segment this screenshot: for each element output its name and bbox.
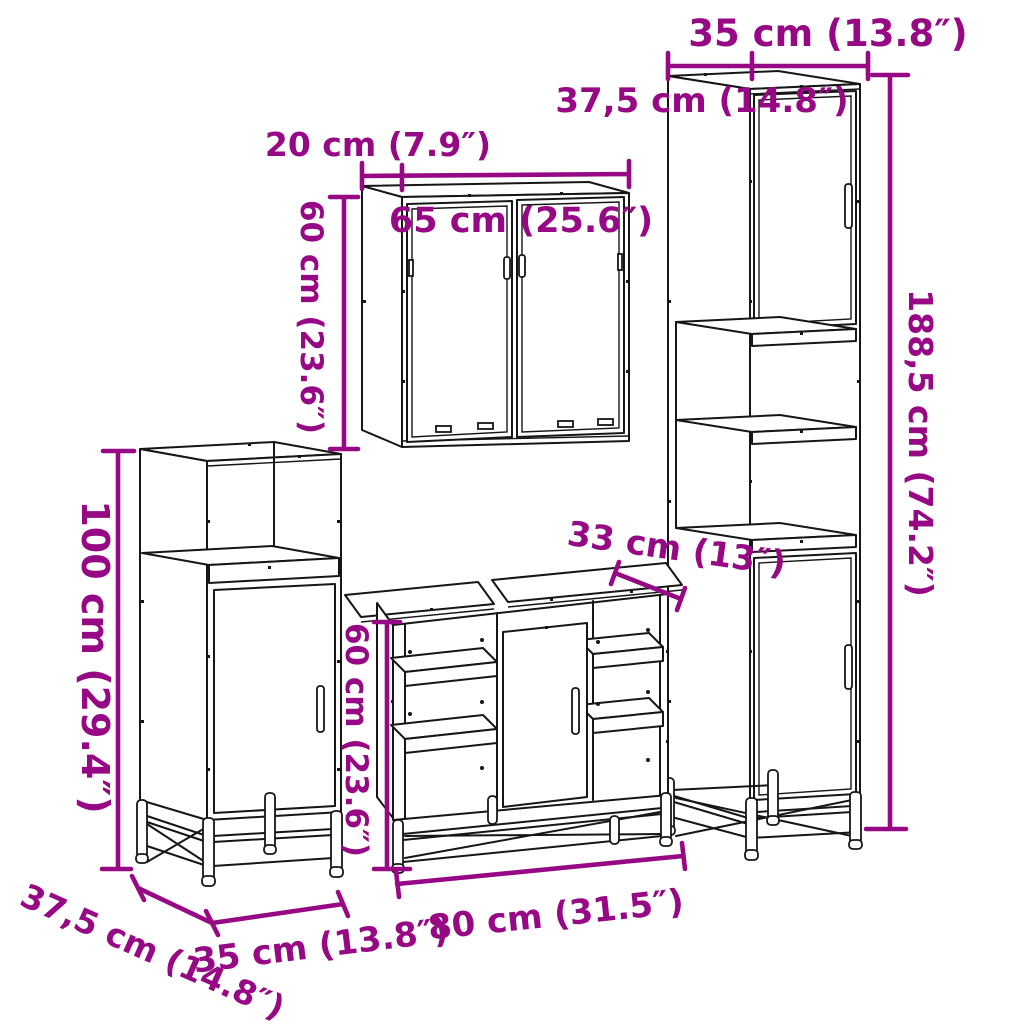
tall-cabinet-bottom-door-handle (845, 645, 852, 689)
dim-side-depth-width: 37,5 cm (14.8″) 35 cm (13.8″) (15, 876, 451, 1024)
dim-tall-width: 35 cm (13.8″) (668, 12, 968, 79)
tall-cabinet-top-door (754, 91, 856, 329)
dim-label-mirror-depth: 20 cm (7.9″) (265, 125, 491, 164)
tall-cabinet-bottom-door (754, 553, 856, 800)
dim-label-vanity-width: 80 cm (31.5″) (426, 882, 686, 949)
furniture-dimension-diagram: 35 cm (13.8″) 37,5 cm (14.8″) 188,5 cm (… (0, 0, 1024, 1024)
vanity-door-handle (572, 688, 579, 734)
side-cabinet-door-handle (317, 686, 324, 732)
side-cabinet-drawing (136, 442, 343, 886)
dim-label-tall-height: 188,5 cm (74.2″) (901, 289, 940, 597)
vanity-cabinet-drawing (345, 563, 682, 873)
dim-side-height: 100 cm (29.4″) (73, 451, 134, 869)
dim-tall-height: 188,5 cm (74.2″) (866, 75, 940, 829)
tall-cabinet-drawing (663, 71, 862, 860)
tall-cabinet-top-door-handle (845, 184, 852, 228)
tall-cabinet-side-face (668, 76, 750, 838)
mirror-cabinet-right-door-handle (519, 255, 525, 277)
mirror-cabinet-left-door-handle (504, 257, 510, 279)
dim-label-mirror-height: 60 cm (23.6″) (293, 200, 329, 434)
diagram-canvas: 35 cm (13.8″) 37,5 cm (14.8″) 188,5 cm (… (0, 0, 1024, 1024)
dim-mirror-height: 60 cm (23.6″) (293, 197, 358, 449)
dim-label-side-height: 100 cm (29.4″) (73, 500, 117, 813)
dim-label-vanity-height: 60 cm (23.6″) (338, 623, 374, 857)
side-cabinet-side-face (140, 449, 207, 820)
dim-label-tall-depth: 37,5 cm (14.8″) (555, 81, 848, 121)
dim-label-tall-width: 35 cm (13.8″) (688, 12, 967, 55)
dim-label-mirror-width: 65 cm (25.6″) (389, 201, 653, 241)
